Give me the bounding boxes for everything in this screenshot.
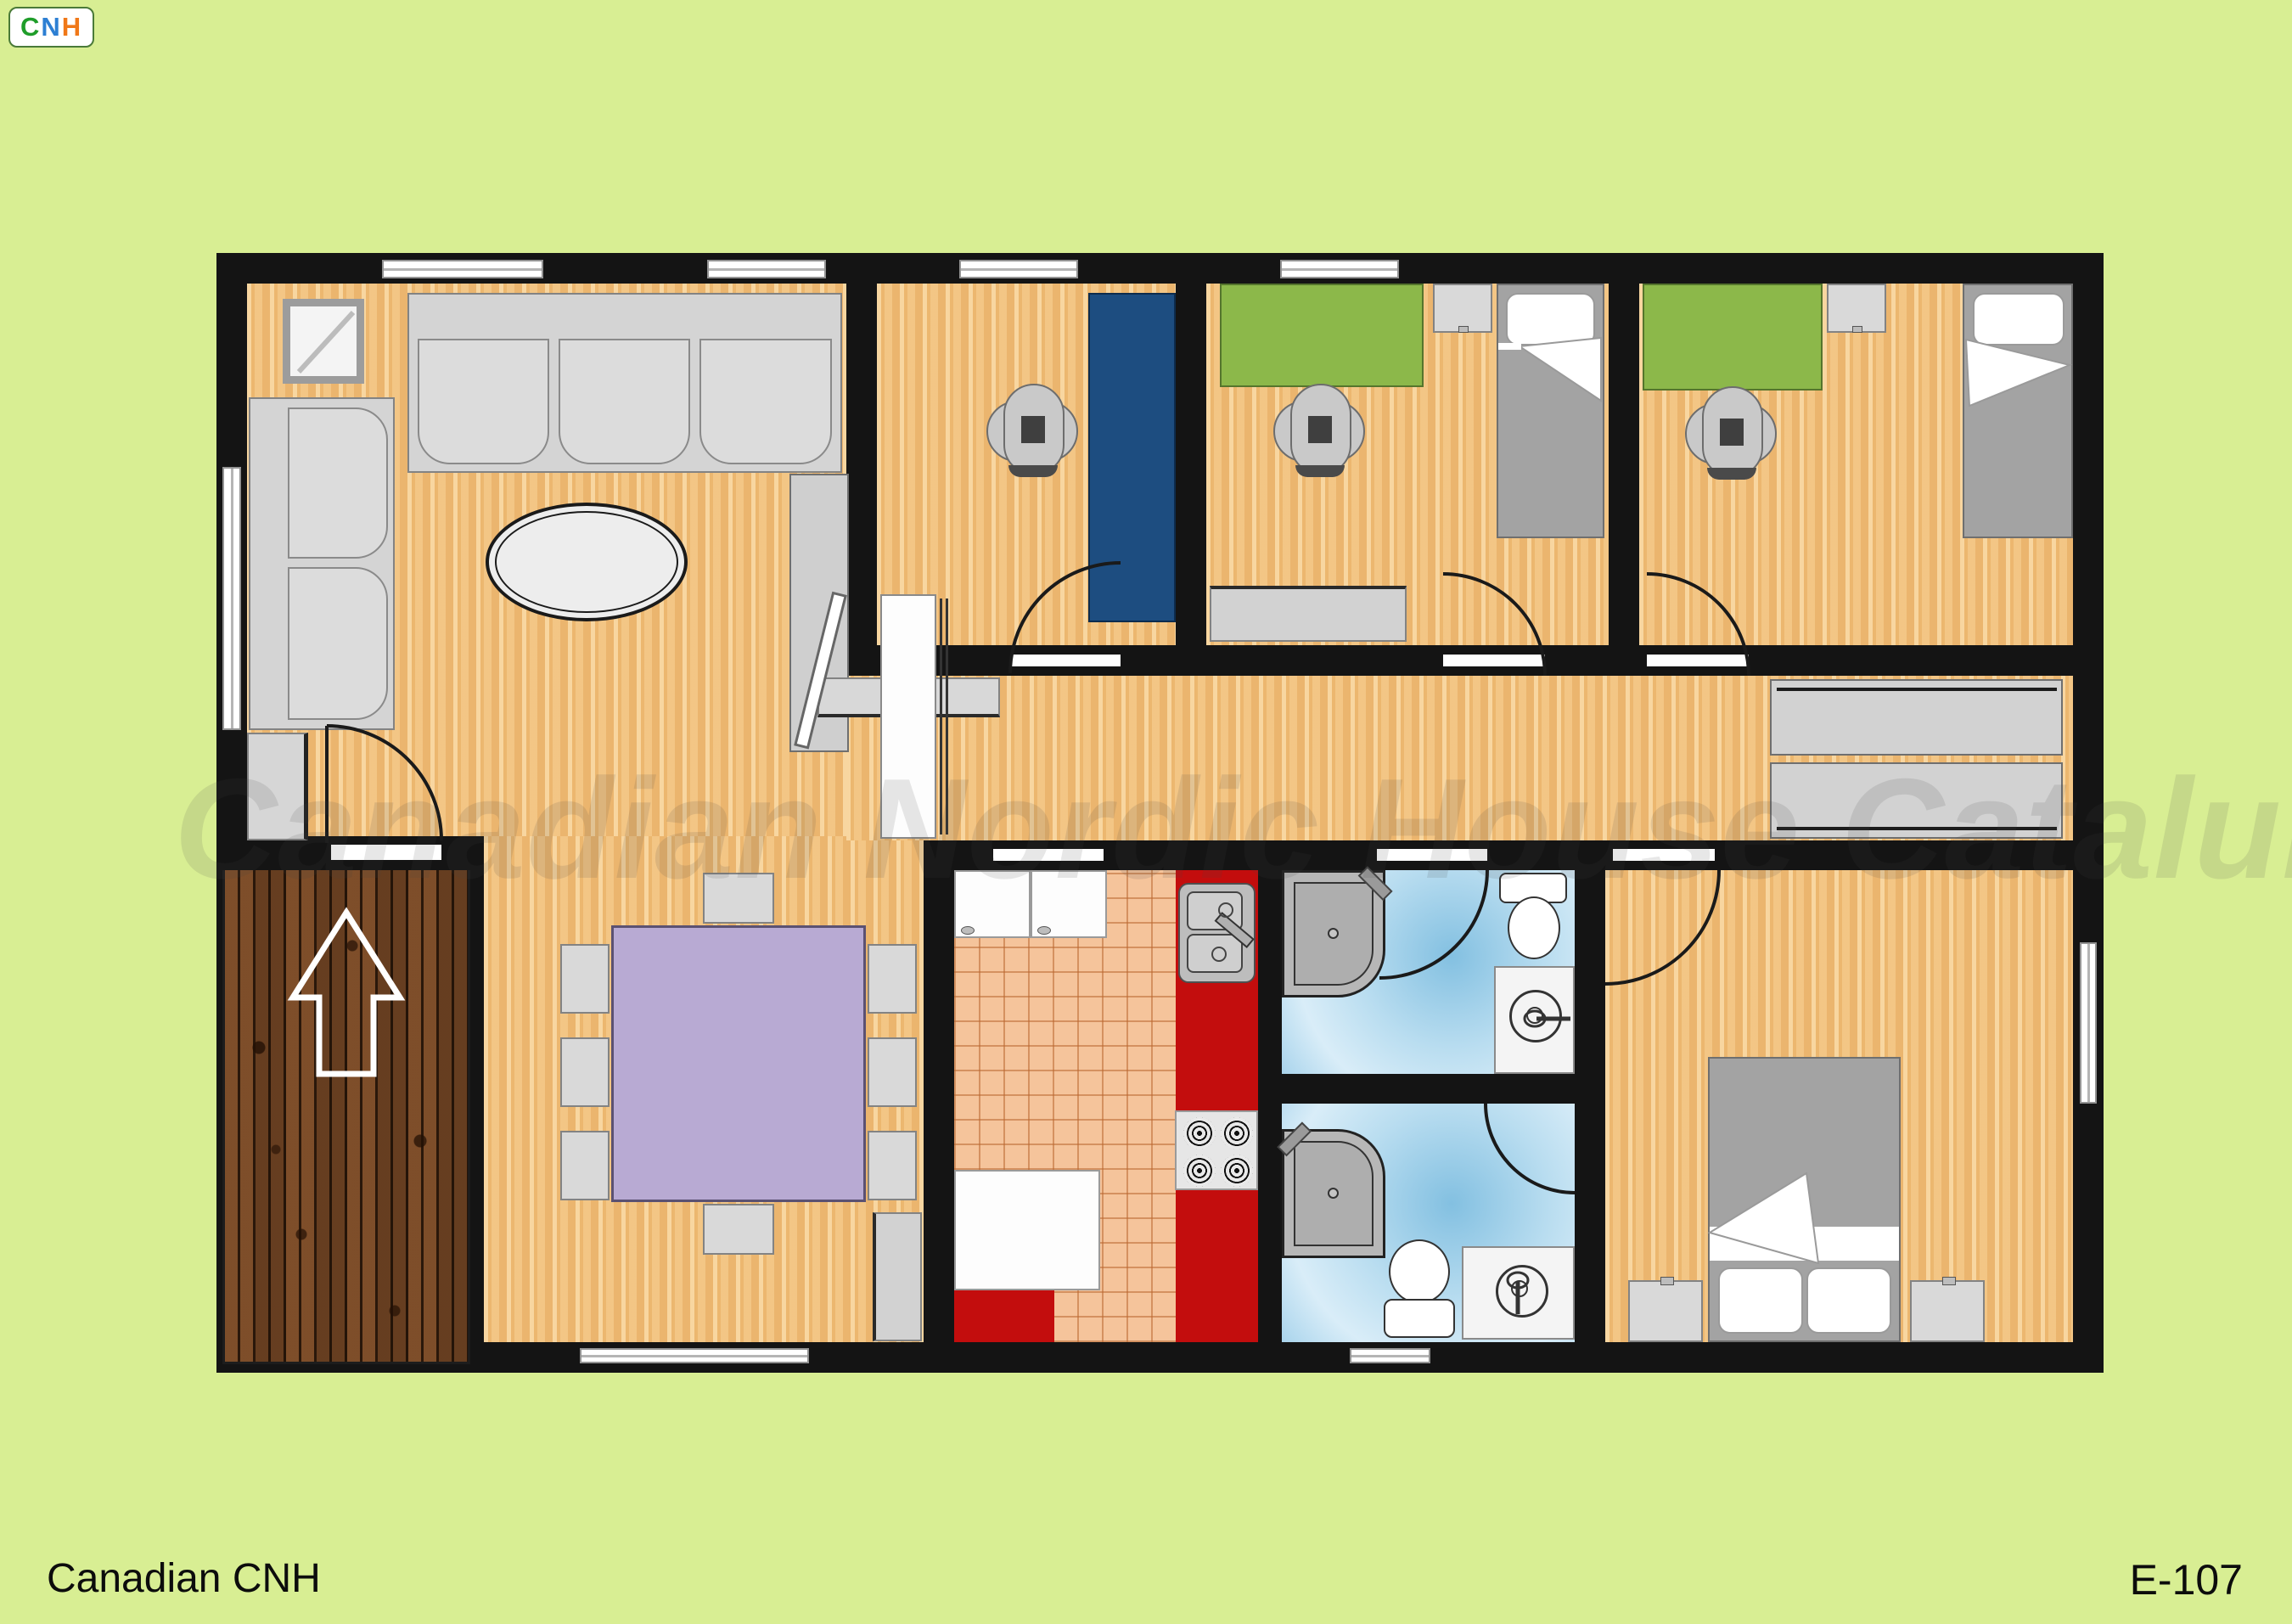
bedroom3-door-opening (1647, 655, 1749, 666)
closet-line (1777, 827, 2057, 830)
nightstand-knob (1660, 1277, 1674, 1285)
office-door-opening (1010, 655, 1121, 666)
dining-chair (703, 873, 774, 924)
kitchen-low-cabinet (954, 1170, 1100, 1290)
living-corner-cabinet (247, 733, 308, 840)
sofa-cushion (699, 339, 832, 464)
wall-bath-master (1575, 840, 1605, 1342)
window-bath2-bottom (1350, 1348, 1430, 1363)
kitchen-upper-cabinet (954, 870, 1031, 938)
bedroom3-desk-green (1643, 284, 1823, 391)
wall-between-bathrooms (1282, 1074, 1575, 1104)
bed-pillow (1973, 293, 2064, 346)
entry-deck (222, 867, 470, 1364)
logo-letter-n: N (41, 12, 61, 42)
kitchen-stove (1175, 1110, 1258, 1190)
bedroom3-nightstand (1827, 284, 1886, 333)
closet-line (1777, 688, 2057, 691)
window-bedroom2-top (959, 260, 1078, 278)
office-wardrobe-rail (940, 598, 942, 834)
bed-pillow (1506, 293, 1595, 346)
logo-letter-h: H (62, 12, 82, 42)
coffee-table-inner-ring (495, 511, 678, 613)
vanity-sink (1509, 990, 1562, 1042)
chair-base (1008, 465, 1058, 477)
kitchen-counter-corner (954, 1290, 1054, 1342)
wall-kitchen-west (924, 840, 954, 1342)
wall-kitchen-east (1258, 840, 1282, 1342)
floorplan-canvas: CNH (0, 0, 2292, 1624)
bathroom2-vanity (1462, 1246, 1575, 1340)
chair-base (1707, 468, 1756, 480)
sofa-two-seat (249, 397, 395, 730)
window-office-top (707, 260, 826, 278)
hall-closet-upper (1770, 679, 2063, 756)
bedroom2-desk-green (1220, 284, 1424, 387)
chair-seat (1308, 416, 1332, 443)
dining-table (611, 925, 866, 1202)
nightstand-knob (1942, 1277, 1956, 1285)
bathroom2-shower (1282, 1129, 1385, 1258)
kitchen-sink-unit (1178, 883, 1256, 983)
window-bedroom3-top (1280, 260, 1399, 278)
bathroom1-vanity (1494, 966, 1575, 1074)
office-desk-blue (1088, 293, 1176, 622)
dining-chair (868, 944, 917, 1014)
bathroom2-toilet-bowl (1389, 1239, 1450, 1304)
cabinet-handle (961, 926, 975, 935)
logo-letter-c: C (20, 12, 41, 42)
sofa-cushion (288, 567, 388, 720)
stove-burner (1183, 1155, 1216, 1187)
shower-drain (1328, 928, 1339, 939)
office-wardrobe (880, 594, 936, 839)
sofa-three-seat (407, 293, 842, 473)
chair-seat (1720, 419, 1744, 446)
kitchen-upper-cabinet (1031, 870, 1107, 938)
bathroom1-shower (1282, 870, 1385, 997)
window-living-left (222, 467, 241, 730)
bedroom2-chair (1273, 384, 1368, 479)
vanity-sink (1496, 1265, 1548, 1318)
nightstand-knob (1852, 326, 1862, 333)
window-living-top (382, 260, 543, 278)
bed-sheet-band (1710, 1227, 1899, 1261)
dining-chair (868, 1037, 917, 1107)
chair-seat (1021, 416, 1045, 443)
kitchen-door-opening (993, 849, 1104, 861)
plan-code-label: E-107 (2130, 1555, 2243, 1604)
master-nightstand-left (1628, 1280, 1703, 1342)
bedroom3-chair (1685, 386, 1780, 481)
dining-chair (560, 1037, 610, 1107)
dining-chair (703, 1204, 774, 1255)
window-dining-bottom (580, 1348, 809, 1363)
dining-sideboard (873, 1212, 922, 1341)
wall-living-office (846, 253, 877, 676)
bedroom2-dresser (1210, 586, 1407, 642)
bed-pillow (1718, 1267, 1803, 1334)
dining-chair (560, 1131, 610, 1200)
dining-chair (560, 944, 610, 1014)
wall-bedroom2-bedroom3 (1609, 253, 1639, 676)
master-double-bed (1708, 1057, 1901, 1342)
shower-drain (1328, 1188, 1339, 1199)
bedroom3-single-bed (1963, 284, 2073, 538)
front-door-opening (331, 845, 441, 860)
master-door-opening (1613, 849, 1715, 861)
sink-basin (1187, 934, 1243, 973)
coffee-table-oval (486, 503, 688, 621)
window-master-right (2080, 942, 2097, 1104)
bedroom2-door-opening (1443, 655, 1545, 666)
sofa-cushion (418, 339, 549, 464)
dining-chair (868, 1131, 917, 1200)
sink-basin (1187, 891, 1243, 930)
office-chair (986, 384, 1081, 479)
nightstand-knob (1458, 326, 1469, 333)
stove-burner (1221, 1155, 1253, 1187)
bathroom1-toilet-bowl (1508, 896, 1560, 959)
sofa-cushion (559, 339, 690, 464)
bedroom2-nightstand (1433, 284, 1492, 333)
cnh-logo: CNH (8, 7, 94, 48)
hall-closet-lower (1770, 762, 2063, 839)
bathroom1-door-opening (1377, 849, 1487, 861)
chair-base (1295, 465, 1345, 477)
stove-burner (1221, 1117, 1253, 1149)
master-nightstand-right (1910, 1280, 1985, 1342)
bathroom2-toilet-tank (1384, 1299, 1455, 1338)
sofa-cushion (288, 407, 388, 559)
stove-burner (1183, 1117, 1216, 1149)
bed-pillow (1806, 1267, 1891, 1334)
bedroom2-single-bed (1497, 284, 1604, 538)
plan-brand-label: Canadian CNH (47, 1555, 321, 1602)
office-wardrobe-rail (946, 598, 948, 834)
wall-office-bedroom2 (1176, 253, 1206, 676)
cabinet-handle (1037, 926, 1051, 935)
wall-mirror (283, 299, 364, 384)
